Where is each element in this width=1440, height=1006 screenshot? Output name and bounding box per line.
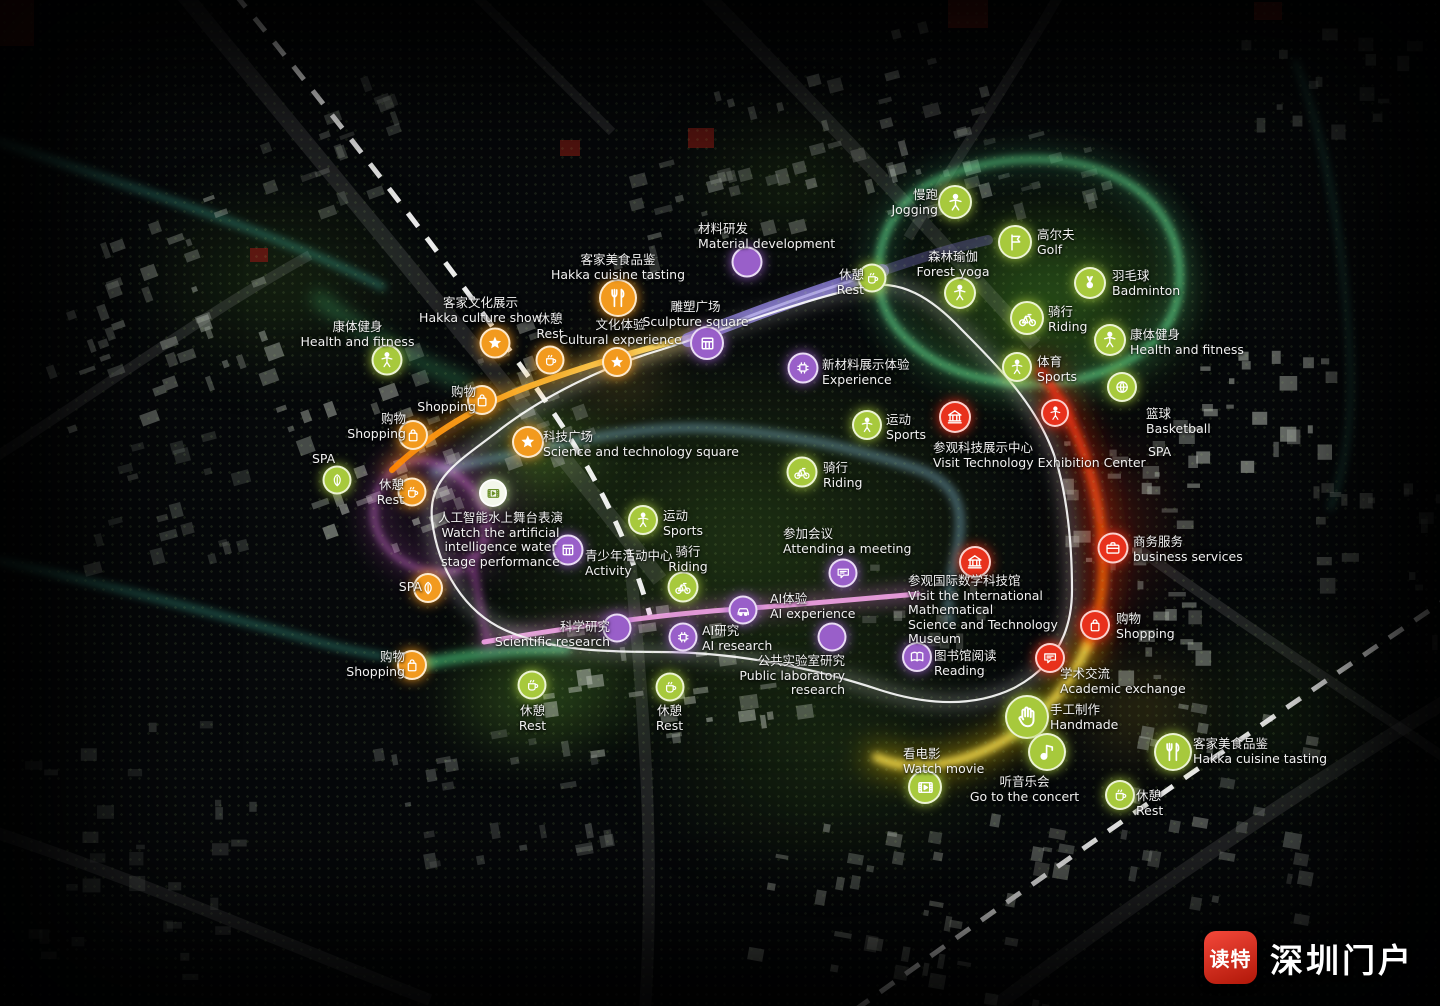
cup-icon <box>523 676 541 694</box>
poi-business-services[interactable] <box>1098 533 1129 564</box>
star-icon <box>486 334 505 353</box>
watermark-site-name: 深圳门户 <box>1270 934 1414 982</box>
poi-sports-mid-east[interactable] <box>852 410 882 440</box>
dutenews-app-icon: 读特 <box>1204 931 1257 984</box>
poi-material-development[interactable] <box>732 247 763 278</box>
poi-spa-south[interactable] <box>413 573 443 603</box>
person-icon <box>1100 330 1120 350</box>
poi-rest-south-2[interactable] <box>656 673 685 702</box>
poi-ai-experience[interactable] <box>729 596 758 625</box>
poi-rest-south-1[interactable] <box>518 671 547 700</box>
poi-ai-research[interactable] <box>669 623 698 652</box>
poi-library-reading[interactable] <box>902 642 932 672</box>
person-icon <box>1008 358 1026 376</box>
cup-icon <box>863 269 881 287</box>
bubble-icon <box>834 564 852 582</box>
bank-icon <box>945 407 965 427</box>
poi-health-fitness-west[interactable] <box>372 345 403 376</box>
grid-icon <box>559 541 578 560</box>
poi-sci-tech-square[interactable] <box>512 426 544 458</box>
poi-shopping-east[interactable] <box>1080 610 1110 640</box>
chip-icon <box>794 359 813 378</box>
poi-jogging[interactable] <box>938 185 972 219</box>
flask-icon <box>738 253 757 272</box>
bike-icon <box>793 463 812 482</box>
bank-icon <box>965 552 985 572</box>
poi-sports-east[interactable] <box>1002 352 1032 382</box>
poi-academic-exchange[interactable] <box>1035 643 1065 673</box>
bike-icon <box>1017 308 1038 329</box>
poi-rest-nw[interactable] <box>536 346 565 375</box>
watermark: 读特 深圳门户 <box>1204 931 1414 984</box>
poi-riding-center[interactable] <box>668 572 699 603</box>
poi-experience-new-materials[interactable] <box>788 353 819 384</box>
poi-rest-north[interactable] <box>858 264 887 293</box>
bag-icon <box>473 391 491 409</box>
cup-icon <box>403 483 421 501</box>
poi-scientific-research[interactable] <box>603 614 632 643</box>
poi-basketball[interactable] <box>1107 372 1137 402</box>
poi-riding-north[interactable] <box>1010 301 1044 335</box>
flask-icon <box>608 619 626 637</box>
bag-icon <box>403 656 421 674</box>
film-icon <box>915 777 936 798</box>
poi-math-science-museum[interactable] <box>959 546 991 578</box>
star-icon <box>608 353 626 371</box>
person-icon <box>378 351 397 370</box>
bag-icon <box>404 426 422 444</box>
poi-rest-west[interactable] <box>398 478 427 507</box>
poi-ai-water-stage-show[interactable] <box>479 479 507 507</box>
poi-hakka-culture-show[interactable] <box>480 328 511 359</box>
poi-watch-movie[interactable] <box>908 770 942 804</box>
leaf-icon <box>328 471 346 489</box>
poi-go-to-the-concert[interactable] <box>1028 733 1066 771</box>
poi-spa-west[interactable] <box>323 466 352 495</box>
poi-rest-southeast[interactable] <box>1105 780 1135 810</box>
poi-health-fitness-east[interactable] <box>1094 324 1126 356</box>
leaf-icon <box>419 579 437 597</box>
poi-badminton[interactable] <box>1074 267 1106 299</box>
poi-golf[interactable] <box>998 225 1032 259</box>
shuttle-icon <box>1080 273 1100 293</box>
map-vector-layer <box>0 0 1440 1006</box>
cup-icon <box>541 351 559 369</box>
poi-attending-a-meeting[interactable] <box>829 559 858 588</box>
bubble-icon <box>1041 649 1059 667</box>
bag-icon <box>1086 616 1104 634</box>
car-icon <box>734 601 752 619</box>
note-icon <box>1035 740 1059 764</box>
flask-icon <box>823 628 841 646</box>
film-icon <box>485 485 502 502</box>
person-icon <box>950 283 970 303</box>
river-lines <box>0 60 1351 662</box>
poi-youth-activity-center[interactable] <box>553 535 584 566</box>
poi-shopping-nw1[interactable] <box>467 385 497 415</box>
poi-tech-route-stop[interactable] <box>1041 399 1069 427</box>
star-icon <box>518 432 538 452</box>
fork-icon <box>1161 740 1185 764</box>
person-icon <box>858 416 876 434</box>
building-blocks <box>10 10 1440 1006</box>
poi-shopping-nw2[interactable] <box>398 420 428 450</box>
poi-public-laboratory-research[interactable] <box>818 623 847 652</box>
poi-riding-mid-east[interactable] <box>787 457 818 488</box>
poi-sports-center[interactable] <box>628 505 658 535</box>
fork-icon <box>606 286 630 310</box>
poi-forest-yoga[interactable] <box>944 277 976 309</box>
poi-hakka-cuisine-east[interactable] <box>1154 733 1192 771</box>
highlighted-blocks <box>0 0 1282 262</box>
person-icon <box>634 511 652 529</box>
book-icon <box>908 648 926 666</box>
bike-icon <box>674 578 693 597</box>
planning-map-canvas: 慢跑Jogging高尔夫Golf森林瑜伽Forest yoga羽毛球Badmin… <box>0 0 1440 1006</box>
person-icon <box>1047 405 1064 422</box>
poi-sculpture-square[interactable] <box>690 326 724 360</box>
poi-cultural-experience[interactable] <box>602 347 632 377</box>
poi-hakka-cuisine-west[interactable] <box>599 279 637 317</box>
cup-icon <box>661 678 679 696</box>
person-icon <box>945 192 966 213</box>
poi-shopping-southwest[interactable] <box>397 650 427 680</box>
hand-icon <box>1013 703 1041 731</box>
case-icon <box>1104 539 1123 558</box>
poi-visit-tech-exhibition-center[interactable] <box>939 401 971 433</box>
flag-icon <box>1005 232 1026 253</box>
grid-icon <box>697 333 718 354</box>
ball-icon <box>1113 378 1131 396</box>
cup-icon <box>1111 786 1129 804</box>
chip-icon <box>674 628 692 646</box>
